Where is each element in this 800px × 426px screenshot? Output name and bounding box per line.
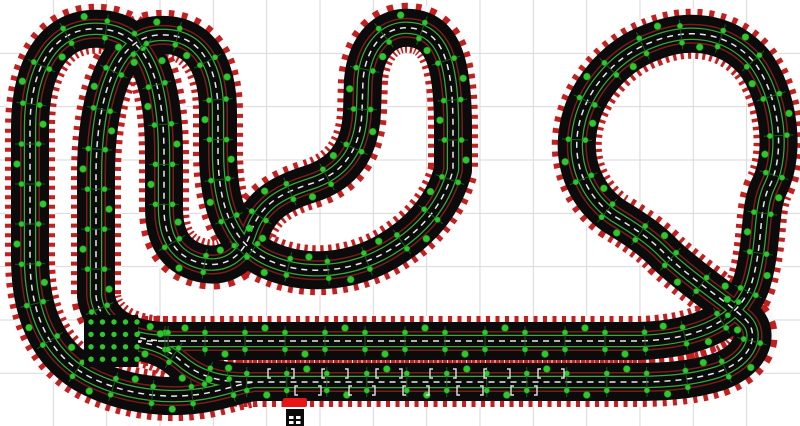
connector-dot (768, 212, 773, 217)
lane-spacer-dot (179, 375, 186, 382)
connector-dot (173, 42, 178, 47)
connector-dot (202, 347, 207, 352)
lane-spacer-dot (502, 325, 509, 332)
lane-spacer-dot (115, 44, 122, 51)
lane-spacer-dot (80, 166, 87, 173)
connector-dot (231, 393, 236, 398)
connector-dot (715, 44, 720, 49)
connector-dot (522, 330, 527, 335)
lane-spacer-dot (503, 392, 510, 399)
power-base-socket (289, 421, 294, 424)
lane-spacer-dot (423, 235, 430, 242)
connector-dot (242, 347, 247, 352)
connector-dot (85, 226, 90, 231)
track-svg (0, 0, 800, 426)
connector-dot (208, 178, 213, 183)
connector-dot (636, 36, 641, 41)
lane-spacer-dot (562, 158, 569, 165)
lane-spacer-dot (131, 59, 138, 66)
lane-spacer-dot (583, 73, 590, 80)
connector-dot (153, 202, 158, 207)
connector-dot (361, 250, 366, 255)
connector-dot (169, 121, 174, 126)
connector-dot (402, 347, 407, 352)
power-base-connector (283, 398, 307, 407)
connector-dot (435, 61, 440, 66)
lane-spacer-dot (600, 185, 607, 192)
connector-dot (153, 162, 158, 167)
connector-dot (202, 330, 207, 335)
connector-dot (24, 303, 29, 308)
connector-dot (562, 347, 567, 352)
power-base-socket (296, 416, 301, 419)
connector-dot (19, 262, 24, 267)
connector-dot (680, 325, 685, 330)
connector-dot (31, 59, 36, 64)
connector-dot (604, 388, 609, 393)
connector-dot (320, 167, 325, 172)
connector-dot (721, 28, 726, 33)
connector-dot (741, 336, 746, 341)
lane-spacer-dot (228, 156, 235, 163)
power-base-unit[interactable] (283, 398, 307, 426)
crossing-pad[interactable] (84, 315, 140, 367)
connector-dot (484, 371, 489, 376)
lane-spacer-dot (182, 325, 189, 332)
connector-dot (524, 388, 529, 393)
lane-spacer-dot (40, 121, 47, 128)
connector-dot (242, 330, 247, 335)
connector-dot (113, 376, 118, 381)
lane-spacer-dot (80, 246, 87, 253)
connector-dot (362, 330, 367, 335)
connector-dot (747, 249, 752, 254)
connector-dot (324, 388, 329, 393)
connector-dot (421, 207, 426, 212)
lane-spacer-dot (68, 344, 75, 351)
connector-dot (177, 26, 182, 31)
connector-dot (149, 401, 154, 406)
connector-dot (107, 109, 112, 114)
lane-spacer-dot (175, 219, 182, 226)
lane-spacer-dot (262, 325, 269, 332)
lane-spacer-dot (661, 232, 668, 239)
connector-dot (451, 55, 456, 60)
connector-dot (197, 62, 202, 67)
lane-spacer-dot (148, 181, 155, 188)
crossing-pad-dot (88, 319, 93, 324)
connector-dot (764, 251, 769, 256)
connector-dot (394, 232, 399, 237)
connector-dot (189, 384, 194, 389)
connector-dot (376, 26, 381, 31)
lane-spacer-dot (762, 151, 769, 158)
connector-dot (201, 270, 206, 275)
crossing-pad-dot (88, 344, 93, 349)
lane-spacer-dot (246, 225, 253, 232)
lane-spacer-dot (379, 53, 386, 60)
connector-dot (284, 272, 289, 277)
connector-dot (644, 51, 649, 56)
lane-spacer-dot (19, 78, 26, 85)
lane-spacer-dot (153, 19, 160, 26)
connector-dot (328, 182, 333, 187)
connector-dot (744, 64, 749, 69)
lane-spacer-dot (422, 325, 429, 332)
lane-spacer-dot (59, 54, 66, 61)
connector-dot (70, 374, 75, 379)
connector-dot (633, 237, 638, 242)
connector-dot (359, 149, 364, 154)
crossing-pad-dot (134, 332, 139, 337)
lane-spacer-dot (369, 128, 376, 135)
lane-spacer-dot (775, 194, 782, 201)
connector-dot (40, 342, 45, 347)
crossing-pad-dot (100, 319, 105, 324)
lane-spacer-dot (375, 238, 382, 245)
connector-dot (354, 65, 359, 70)
connector-dot (255, 241, 260, 246)
connector-dot (644, 388, 649, 393)
connector-dot (282, 347, 287, 352)
connector-dot (86, 146, 91, 151)
connector-dot (719, 359, 724, 364)
connector-dot (642, 330, 647, 335)
crossing-pad-dot (111, 332, 116, 337)
connector-dot (244, 371, 249, 376)
lane-spacer-dot (40, 201, 47, 208)
lane-spacer-dot (14, 241, 21, 248)
lane-spacer-dot (81, 13, 88, 20)
lane-spacer-dot (583, 392, 590, 399)
connector-dot (170, 162, 175, 167)
connector-dot (206, 98, 211, 103)
crossing-pad-dot (134, 357, 139, 362)
power-base-body (286, 409, 304, 426)
connector-dot (47, 66, 52, 71)
connector-dot (224, 137, 229, 142)
crossing-pad-dot (123, 319, 128, 324)
connector-dot (208, 366, 213, 371)
lane-spacer-dot (654, 23, 661, 30)
connector-dot (757, 53, 762, 58)
connector-dot (386, 39, 391, 44)
connector-dot (458, 97, 463, 102)
lane-spacer-dot (202, 116, 209, 123)
crossing-pad-dot (111, 344, 116, 349)
connector-dot (207, 137, 212, 142)
connector-dot (644, 371, 649, 376)
lane-spacer-dot (309, 193, 316, 200)
connector-dot (146, 84, 151, 89)
connector-dot (402, 330, 407, 335)
connector-dot (162, 245, 167, 250)
lane-spacer-dot (173, 141, 180, 148)
connector-dot (679, 40, 684, 45)
connector-dot (166, 359, 171, 364)
connector-dot (244, 254, 249, 259)
connector-dot (704, 275, 709, 280)
lane-spacer-dot (543, 366, 550, 373)
lane-spacer-dot (424, 47, 431, 54)
crossing-pad-dot (111, 319, 116, 324)
connector-dot (20, 100, 25, 105)
track-designer-canvas (0, 0, 800, 426)
connector-dot (738, 285, 743, 290)
connector-dot (777, 91, 782, 96)
connector-dot (482, 347, 487, 352)
connector-dot (131, 52, 136, 57)
connector-dot (484, 388, 489, 393)
connector-dot (19, 181, 24, 186)
lane-spacer-dot (147, 323, 154, 330)
connector-dot (165, 330, 170, 335)
connector-dot (367, 266, 372, 271)
lane-spacer-dot (106, 206, 113, 213)
lane-spacer-dot (542, 351, 549, 358)
connector-dot (19, 221, 24, 226)
connector-dot (642, 223, 647, 228)
lane-spacer-dot (437, 117, 444, 124)
lane-spacer-dot (734, 327, 741, 334)
connector-dot (763, 170, 768, 175)
connector-dot (442, 330, 447, 335)
lane-spacer-dot (460, 75, 467, 82)
lane-spacer-dot (176, 265, 183, 272)
connector-dot (364, 371, 369, 376)
lane-spacer-dot (106, 286, 113, 293)
lane-spacer-dot (747, 364, 754, 371)
connector-dot (564, 388, 569, 393)
lane-spacer-dot (427, 188, 434, 195)
connector-dot (599, 214, 604, 219)
lane-spacer-dot (261, 269, 268, 276)
connector-dot (103, 147, 108, 152)
connector-dot (604, 371, 609, 376)
connector-dot (610, 201, 615, 206)
connector-dot (344, 142, 349, 147)
lane-spacer-dot (302, 351, 309, 358)
lane-spacer-dot (330, 152, 337, 159)
connector-dot (714, 311, 719, 316)
lane-spacer-dot (14, 161, 21, 168)
connector-dot (577, 95, 582, 100)
lane-spacer-dot (183, 52, 190, 59)
connector-dot (364, 388, 369, 393)
connector-dot (736, 299, 741, 304)
lane-spacer-dot (261, 188, 268, 195)
lane-spacer-dot (664, 391, 671, 398)
crossing-pad-dot (134, 344, 139, 349)
connector-dot (325, 259, 330, 264)
lane-spacer-dot (169, 406, 176, 413)
connector-dot (218, 219, 223, 224)
power-base-socket (296, 421, 301, 424)
connector-dot (162, 80, 167, 85)
connector-dot (562, 330, 567, 335)
lane-spacer-dot (303, 366, 310, 373)
connector-dot (566, 136, 571, 141)
power-base-socket (289, 416, 294, 419)
connector-dot (223, 96, 228, 101)
connector-dot (442, 347, 447, 352)
connector-dot (36, 181, 41, 186)
connector-dot (119, 72, 124, 77)
lane-spacer-dot (159, 57, 166, 64)
connector-dot (85, 186, 90, 191)
crossing-pad-dot (123, 357, 128, 362)
connector-dot (602, 60, 607, 65)
connector-dot (176, 345, 181, 350)
connector-dot (69, 41, 74, 46)
connector-dot (362, 347, 367, 352)
lane-spacer-dot (41, 279, 48, 286)
connector-dot (202, 382, 207, 387)
connector-dot (36, 261, 41, 266)
connector-dot (583, 137, 588, 142)
lane-spacer-dot (86, 388, 93, 395)
connector-dot (767, 133, 772, 138)
crossing-pad-dot (111, 357, 116, 362)
lane-spacer-dot (786, 110, 793, 117)
lane-spacer-dot (346, 85, 353, 92)
connector-dot (324, 371, 329, 376)
connector-dot (102, 226, 107, 231)
connector-dot (244, 388, 249, 393)
connector-dot (761, 96, 766, 101)
connector-dot (232, 243, 237, 248)
connector-dot (326, 276, 331, 281)
connector-dot (723, 325, 728, 330)
lane-spacer-dot (705, 338, 712, 345)
connector-dot (758, 340, 763, 345)
connector-dot (444, 388, 449, 393)
lane-spacer-dot (207, 199, 214, 206)
connector-dot (37, 102, 42, 107)
lane-spacer-dot (589, 120, 596, 127)
connector-dot (753, 293, 758, 298)
connector-dot (573, 179, 578, 184)
lane-spacer-dot (306, 254, 313, 261)
connector-dot (694, 288, 699, 293)
lane-spacer-dot (764, 272, 771, 279)
connector-dot (212, 55, 217, 60)
connector-dot (91, 105, 96, 110)
connector-dot (284, 181, 289, 186)
connector-dot (684, 341, 689, 346)
lane-spacer-dot (217, 247, 224, 254)
lane-spacer-dot (623, 366, 630, 373)
lane-spacer-dot (142, 351, 149, 358)
crossing-pad-dot (88, 357, 93, 362)
connector-dot (144, 41, 149, 46)
connector-dot (404, 388, 409, 393)
connector-dot (151, 384, 156, 389)
lane-spacer-dot (660, 323, 667, 330)
connector-dot (589, 173, 594, 178)
connector-dot (85, 266, 90, 271)
connector-dot (108, 392, 113, 397)
lane-spacer-dot (157, 330, 164, 337)
lane-spacer-dot (724, 296, 731, 303)
connector-dot (41, 299, 46, 304)
lane-spacer-dot (132, 376, 139, 383)
connector-dot (282, 330, 287, 335)
connector-dot (726, 374, 731, 379)
connector-dot (203, 253, 208, 258)
lane-spacer-dot (263, 392, 270, 399)
lane-spacer-dot (696, 44, 703, 51)
lane-spacer-dot (749, 80, 756, 87)
connector-dot (439, 174, 444, 179)
connector-dot (36, 221, 41, 226)
connector-dot (102, 266, 107, 271)
connector-dot (522, 347, 527, 352)
connector-dot (170, 202, 175, 207)
lane-spacer-dot (206, 376, 213, 383)
connector-dot (288, 256, 293, 261)
lane-spacer-dot (744, 228, 751, 235)
crossing-pad-dot (88, 332, 93, 337)
lane-spacer-dot (462, 351, 469, 358)
lane-spacer-dot (700, 359, 707, 366)
crossing-pad-dot (100, 344, 105, 349)
lane-spacer-dot (222, 351, 229, 358)
connector-dot (592, 102, 597, 107)
connector-dot (368, 107, 373, 112)
lane-spacer-dot (397, 12, 404, 19)
connector-dot (455, 180, 460, 185)
crossing-pad-dot (134, 319, 139, 324)
lane-spacer-dot (224, 73, 231, 80)
connector-dot (351, 106, 356, 111)
connector-dot (435, 217, 440, 222)
lane-spacer-dot (582, 325, 589, 332)
connector-dot (55, 333, 60, 338)
connector-dot (284, 371, 289, 376)
connector-dot (751, 209, 756, 214)
lane-spacer-dot (347, 276, 354, 283)
lane-spacer-dot (463, 366, 470, 373)
connector-dot (662, 263, 667, 268)
connector-dot (89, 309, 94, 314)
connector-dot (725, 313, 730, 318)
connector-dot (132, 31, 137, 36)
connector-dot (459, 137, 464, 142)
lane-spacer-dot (622, 351, 629, 358)
lane-spacer-dot (225, 365, 232, 372)
connector-dot (441, 98, 446, 103)
connector-dot (263, 218, 268, 223)
connector-dot (234, 212, 239, 217)
connector-dot (152, 122, 157, 127)
connector-dot (103, 65, 108, 70)
crossing-pad-dot (100, 357, 105, 362)
connector-dot (225, 176, 230, 181)
crossing-pad-dot (123, 344, 128, 349)
connector-dot (614, 72, 619, 77)
connector-dot (322, 347, 327, 352)
connector-dot (404, 371, 409, 376)
connector-dot (36, 141, 41, 146)
lane-spacer-dot (91, 83, 98, 90)
connector-dot (19, 141, 24, 146)
lane-spacer-dot (144, 103, 151, 110)
lane-spacer-dot (630, 63, 637, 70)
connector-dot (291, 197, 296, 202)
connector-dot (165, 347, 170, 352)
connector-dot (284, 388, 289, 393)
